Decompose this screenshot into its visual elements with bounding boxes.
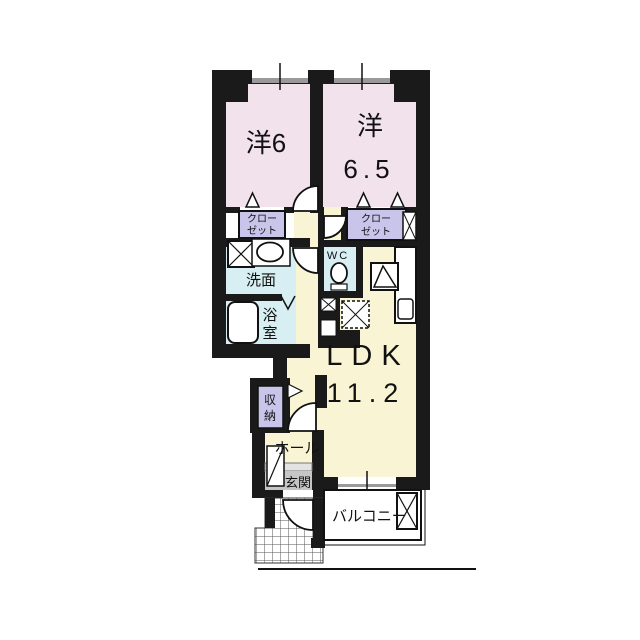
wall-right bbox=[416, 70, 430, 490]
hall-label: ホール bbox=[274, 440, 319, 457]
closet1-label-2: ゼット bbox=[247, 225, 277, 237]
floor-hatch-icon bbox=[342, 301, 369, 328]
wall-porch-left bbox=[265, 498, 275, 528]
wall-niche bbox=[321, 320, 336, 336]
pipe-space-icon bbox=[403, 212, 416, 240]
storage-label-1: 収 bbox=[264, 393, 276, 407]
wall-porch-block bbox=[311, 538, 325, 548]
bedroom1-label: 洋6 bbox=[246, 128, 286, 158]
wall-genkan-bottom-r bbox=[313, 490, 324, 498]
wc-label: WC bbox=[327, 250, 349, 262]
floor-plan-drawing: 洋6 洋 6.5 LDK 11.2 クロー ゼット クロー ゼット 洗面 浴 室… bbox=[0, 0, 640, 640]
wall-vent-icon bbox=[321, 298, 336, 311]
wall-ldk-left-upper bbox=[273, 357, 287, 378]
closet2-label-1: クロー bbox=[361, 213, 391, 225]
entrance-label: 玄関 bbox=[285, 475, 311, 490]
toilet-base bbox=[331, 284, 347, 290]
wall-ldk-bottom-l bbox=[312, 477, 338, 490]
bedroom2-floor bbox=[323, 84, 416, 207]
balcony-label: バルコニー bbox=[332, 508, 407, 525]
wall-genkan-bottom-l bbox=[265, 490, 283, 498]
wall-ldk-bottom-r bbox=[396, 477, 430, 490]
wall-porch-right bbox=[313, 498, 323, 538]
wall-wc-right bbox=[356, 247, 363, 293]
ldk-label-2: 11.2 bbox=[327, 378, 406, 408]
wall-left bbox=[212, 70, 226, 358]
bathroom-label-1: 浴 bbox=[262, 307, 277, 324]
bathroom-label-2: 室 bbox=[262, 325, 277, 342]
kitchen-sink-icon bbox=[398, 299, 413, 319]
toilet-icon bbox=[331, 263, 347, 283]
ldk-label-1: LDK bbox=[326, 340, 409, 372]
wall-hall-left bbox=[252, 433, 265, 498]
storage-label-2: 納 bbox=[264, 409, 276, 423]
closet1-label-1: クロー bbox=[247, 213, 277, 225]
sink-icon bbox=[257, 243, 283, 262]
bathtub-icon bbox=[228, 302, 258, 343]
wall-wash-bath-divider bbox=[226, 294, 282, 301]
wall-seg-a bbox=[226, 207, 240, 213]
wall-kitchen-top bbox=[318, 240, 416, 247]
washroom-label: 洗面 bbox=[246, 272, 276, 289]
bedroom2-label-1: 洋 bbox=[357, 111, 383, 141]
floor-plan-page: 洋6 洋 6.5 LDK 11.2 クロー ゼット クロー ゼット 洗面 浴 室… bbox=[0, 0, 640, 640]
wall-bath-bottom bbox=[212, 344, 310, 358]
bedroom2-label-2: 6.5 bbox=[343, 154, 394, 184]
closet2-label-2: ゼット bbox=[361, 226, 391, 238]
